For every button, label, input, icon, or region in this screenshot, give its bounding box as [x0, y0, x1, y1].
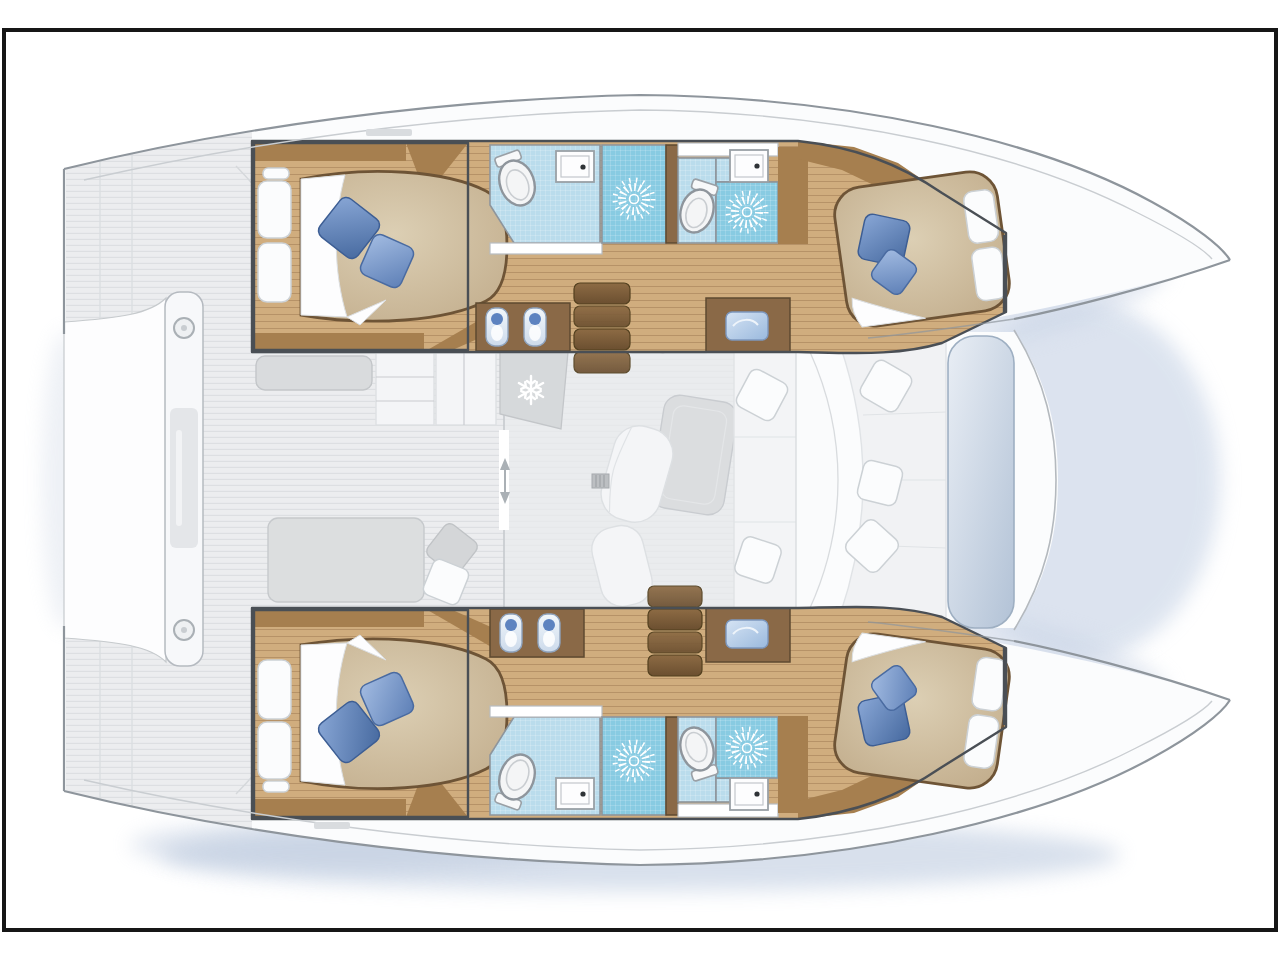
chart-desk [706, 608, 790, 662]
head-aft [675, 716, 808, 817]
crossbeam-center [170, 408, 198, 548]
head-partition [666, 145, 678, 243]
head-partition [778, 147, 808, 244]
shower-stall [716, 717, 778, 778]
white-pillow [971, 656, 1008, 712]
headboard [254, 799, 406, 817]
transom-platform [64, 298, 166, 662]
white-pillow [258, 181, 291, 238]
galley-unit [376, 353, 434, 425]
daybed [268, 518, 424, 602]
white-pillow [258, 722, 291, 779]
catamaran-floor-plan [0, 0, 1280, 960]
head-forward [490, 706, 666, 815]
stern-platform [64, 292, 203, 666]
white-pillow [263, 168, 289, 179]
head-wall [490, 243, 602, 254]
bench [256, 356, 372, 390]
floor-vent [592, 474, 609, 488]
head-forward [490, 145, 666, 254]
floor-plan-drawing [0, 0, 1280, 960]
white-cushion [856, 459, 904, 507]
deck-fitting-pin [181, 627, 187, 633]
white-pillow [258, 660, 291, 719]
dimension-mark [314, 822, 350, 829]
head-partition [778, 716, 808, 813]
chart-desk [706, 298, 790, 352]
twin-sink-vanity [490, 609, 584, 657]
twin-sink-vanity [476, 303, 570, 351]
lounge-pad [948, 336, 1014, 628]
desk-basin [726, 312, 768, 340]
white-pillow [263, 781, 289, 792]
deck-fitting-pin [181, 325, 187, 331]
galley-unit [436, 353, 496, 425]
starboard-hull-interior [252, 586, 1013, 819]
head-wall [490, 706, 602, 717]
crossbeam-slot [176, 430, 182, 526]
shower-stall [716, 182, 778, 243]
head-partition [666, 717, 678, 815]
headboard [254, 143, 406, 161]
white-pillow [971, 246, 1008, 302]
head-aft [675, 143, 808, 244]
white-pillow [258, 243, 291, 302]
desk-basin [726, 620, 768, 648]
port-hull-interior [252, 141, 1013, 373]
dimension-mark [366, 129, 412, 136]
